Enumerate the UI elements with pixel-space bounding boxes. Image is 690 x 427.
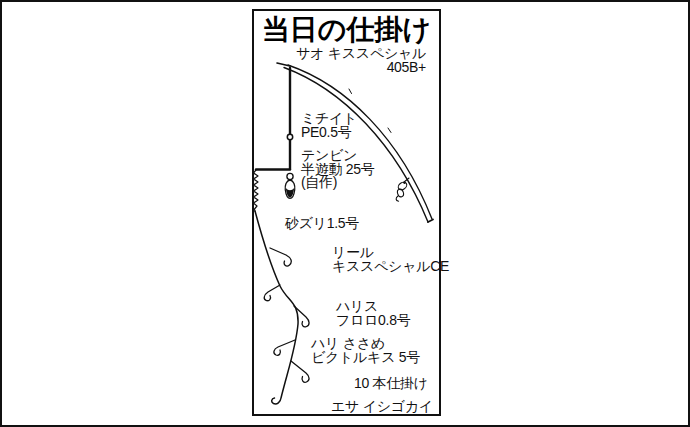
tenbin-label: テンビン 半遊動 25号 (自作) — [301, 149, 374, 190]
mainline-label: ミチイト PE0.5号 — [301, 112, 357, 139]
reel-icon — [396, 178, 409, 201]
rod-drawing — [277, 63, 433, 222]
hook-icon — [264, 285, 280, 301]
diagram-title: 当日の仕掛け — [252, 11, 441, 49]
hook-icon — [291, 361, 309, 382]
reel-label: リール キススペシャルCE — [332, 246, 449, 273]
stop-bead-icon — [287, 134, 292, 139]
bait-label: エサ イシゴカイ — [331, 400, 433, 414]
leader-label: ハリス フロロ0.8号 — [336, 300, 410, 327]
sand-leader-label: 砂ズリ1.5号 — [285, 217, 359, 231]
fishing-rig-diagram: 当日の仕掛け — [0, 0, 690, 427]
sand-leader-coil — [254, 170, 259, 212]
hook-label: ハリ ささめ ビクトルキス 5号 — [311, 337, 420, 364]
rig-line — [255, 211, 298, 404]
hook-icon — [270, 248, 291, 266]
rod-label: サオ キススペシャル 405B+ — [296, 47, 426, 74]
sinker-weight-icon — [285, 173, 295, 198]
hook-icon — [274, 340, 295, 355]
rig-count-label: 10 本仕掛け — [354, 377, 428, 391]
